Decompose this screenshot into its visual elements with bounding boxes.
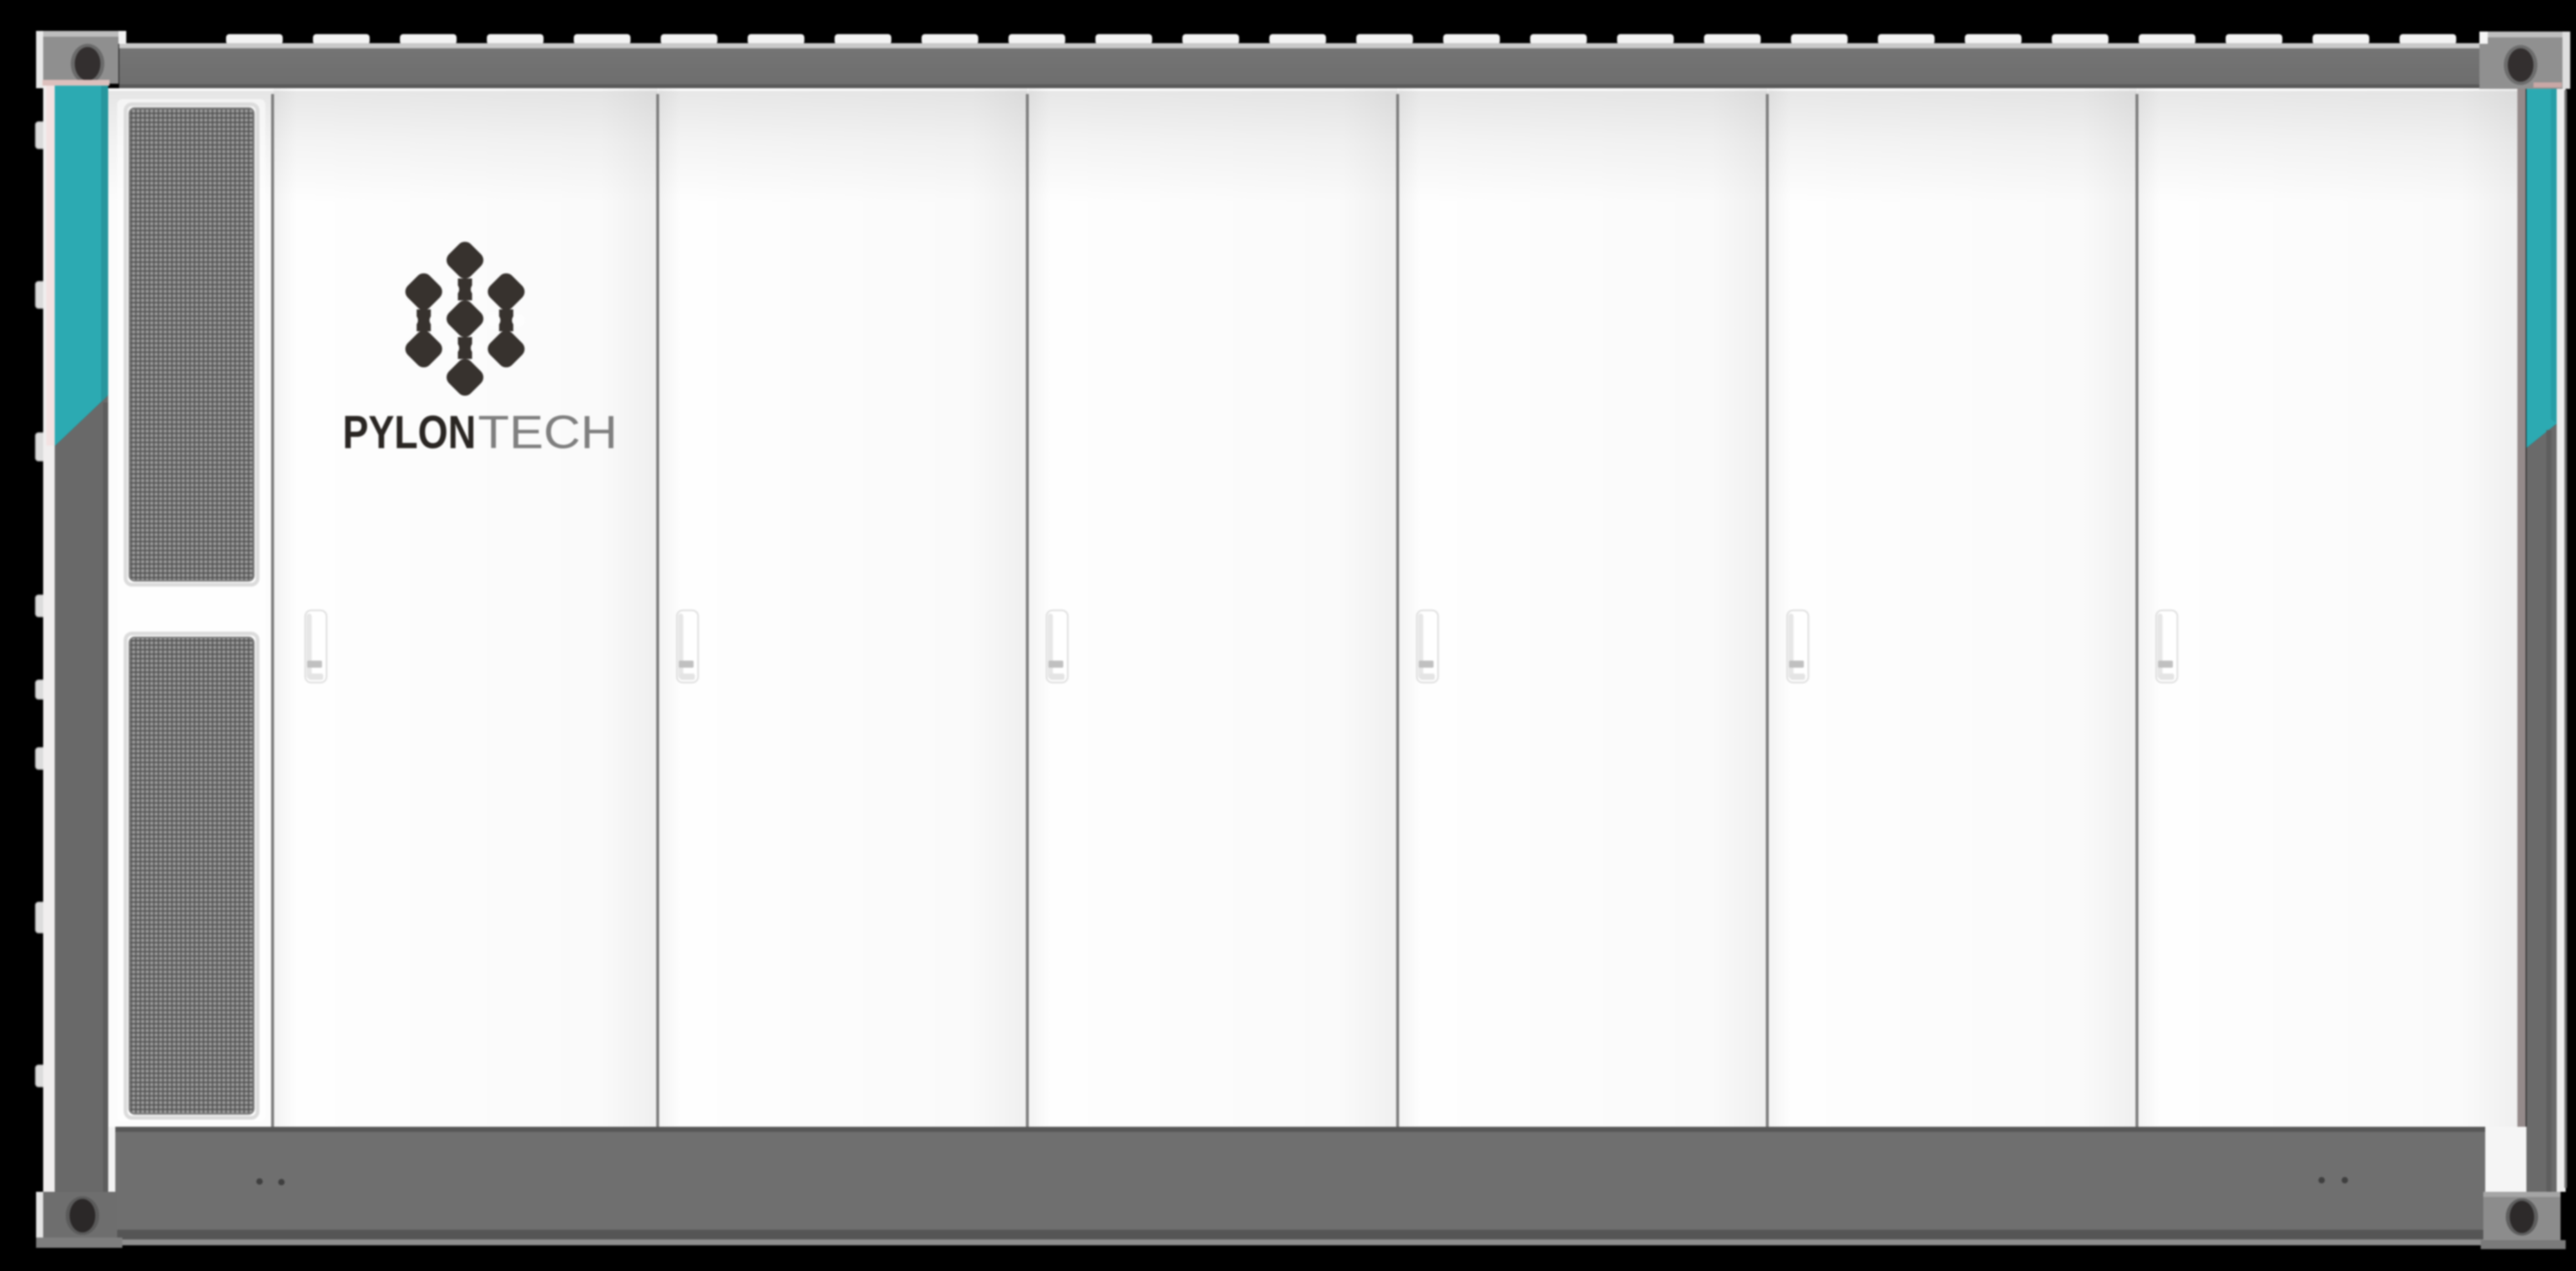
- svg-text:TECH: TECH: [478, 407, 618, 458]
- svg-text:PYLON: PYLON: [343, 407, 476, 458]
